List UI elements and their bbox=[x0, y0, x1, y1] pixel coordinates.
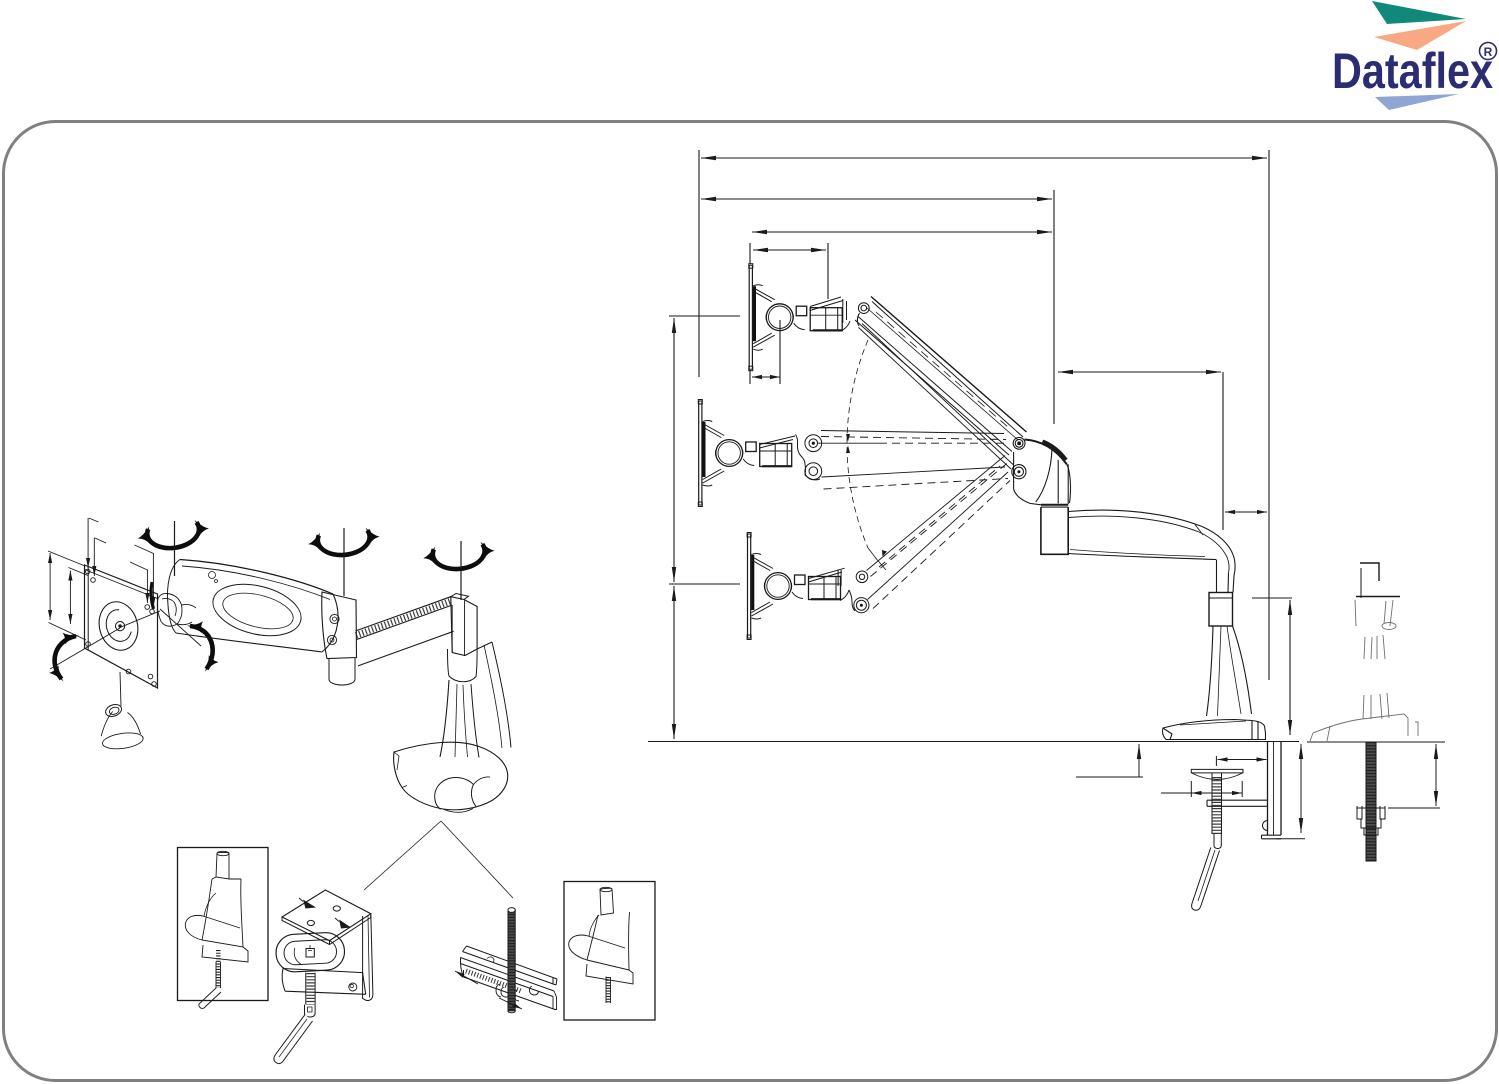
svg-text:R: R bbox=[1484, 45, 1493, 59]
svg-text:Dataflex: Dataflex bbox=[1332, 43, 1493, 99]
